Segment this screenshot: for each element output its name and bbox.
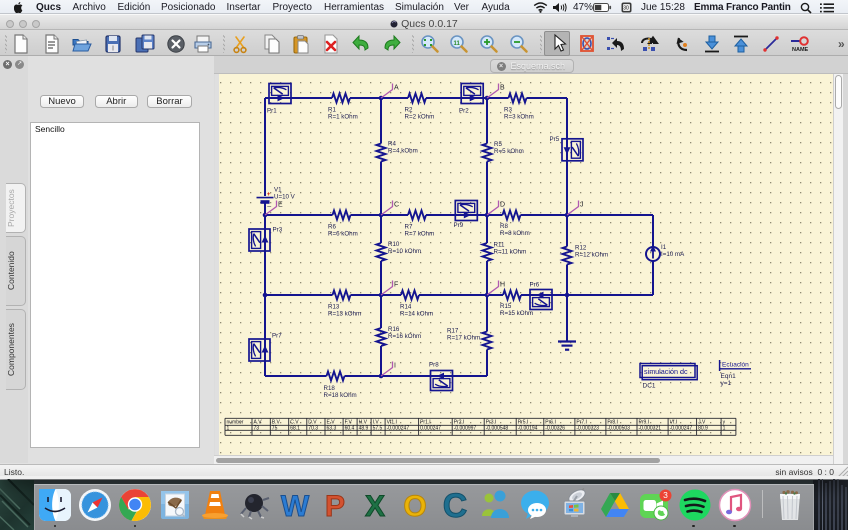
svg-text:11: 11 [454, 41, 461, 47]
svg-text:30: 30 [623, 6, 629, 12]
svg-text:NAME: NAME [792, 47, 809, 53]
